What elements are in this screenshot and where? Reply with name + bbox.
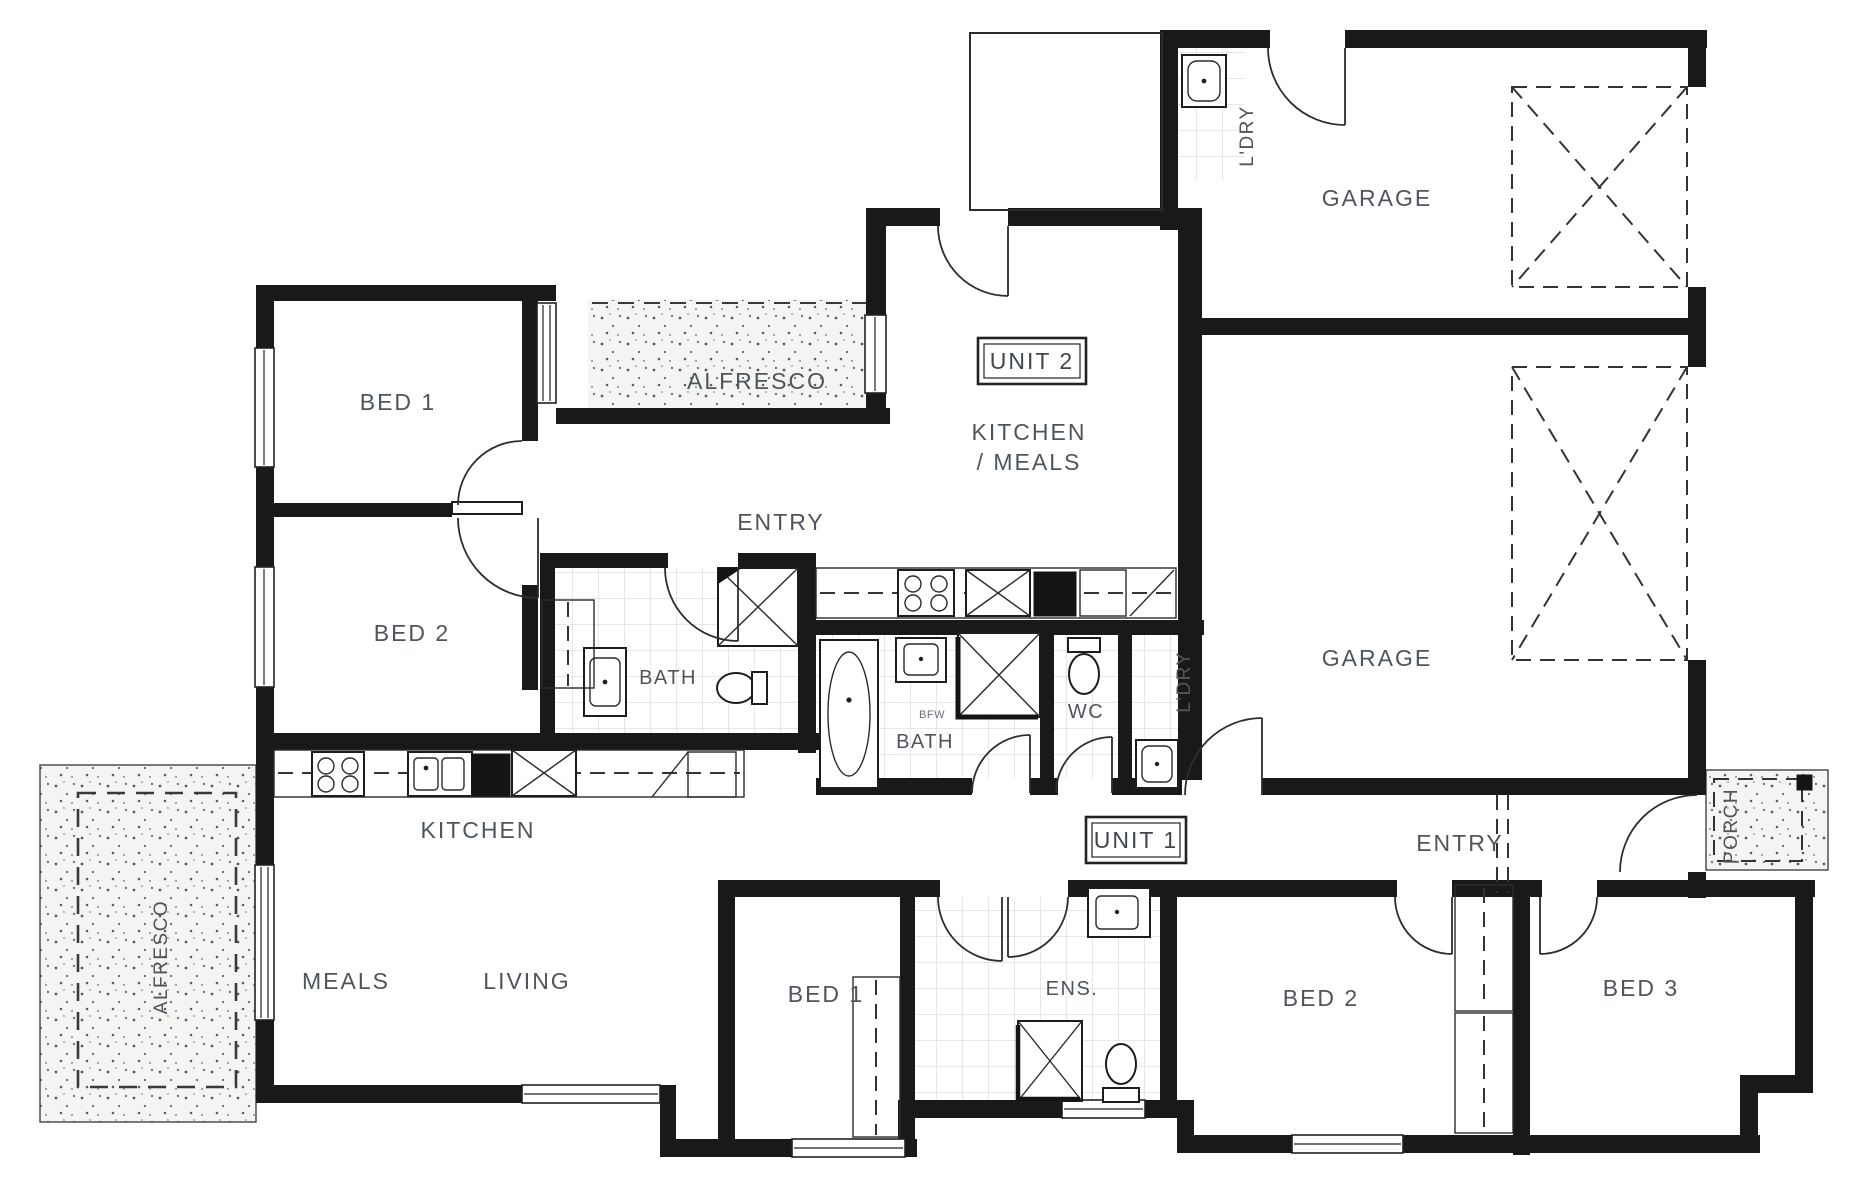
label-unit1-bed2: BED 2 (1283, 985, 1359, 1011)
garage-door-unit1 (1512, 367, 1687, 660)
label-unit1-wc: WC (1068, 701, 1104, 723)
floor-plan-drawing: UNIT 2 UNIT 1 BED 1 BED 2 ALFRESCO ENTRY… (0, 0, 1871, 1188)
unit2-tag: UNIT 2 (978, 338, 1086, 384)
vanity-ens (1088, 888, 1150, 937)
bathtub-unit1 (820, 640, 878, 788)
unit2-tag-label: UNIT 2 (990, 348, 1074, 374)
floor-plan-canvas: UNIT 2 UNIT 1 BED 1 BED 2 ALFRESCO ENTRY… (0, 0, 1871, 1188)
shower-unit1-bath (958, 633, 1040, 717)
meals-sliding-door (255, 865, 274, 1020)
alfresco-unit2-window (865, 315, 886, 393)
alfresco-unit1-area (40, 765, 256, 1122)
bed1-unit1-window (792, 1139, 905, 1157)
bed1-unit2-door (458, 441, 522, 505)
label-unit1-bath: BATH (896, 731, 954, 753)
oven-unit2 (1034, 572, 1076, 616)
garage-rear-door (1268, 48, 1345, 125)
label-unit1-entry: ENTRY (1416, 830, 1504, 856)
living-window (522, 1085, 660, 1103)
toilet-ens (1103, 1044, 1139, 1102)
shower-unit2 (718, 568, 798, 646)
label-unit1-meals: MEALS (302, 968, 390, 994)
label-unit1-living: LIVING (483, 968, 570, 994)
alfresco-unit2-slider (537, 303, 556, 403)
linen-hall-lower (1455, 1013, 1513, 1133)
toilet-wc (1068, 638, 1100, 694)
cooktop-unit2 (898, 570, 954, 616)
linen-hall-upper (1455, 885, 1513, 1011)
toilet-unit2 (717, 672, 767, 704)
sink-unit2 (966, 570, 1030, 616)
laundry-tub-unit1 (1136, 740, 1178, 788)
label-unit2-kitchen-meals-2: / MEALS (977, 449, 1082, 475)
kitchen-bench-unit2 (816, 568, 1176, 618)
label-unit1-laundry: L'DRY (1174, 651, 1195, 712)
label-unit1-bed3: BED 3 (1603, 975, 1679, 1001)
unit2-front-door (938, 226, 1008, 296)
shower-ens (1018, 1021, 1082, 1101)
label-unit2-bed2: BED 2 (374, 620, 450, 646)
label-unit1-bed1: BED 1 (788, 981, 864, 1007)
cooktop-unit1 (312, 752, 364, 796)
label-unit1-kitchen: KITCHEN (421, 817, 536, 843)
unit2-entry-court (970, 33, 1162, 210)
label-unit1-ens: ENS. (1046, 978, 1099, 1000)
oven-unit1 (472, 754, 510, 796)
label-unit1-bath-note: BFW (919, 709, 945, 721)
unit1-tag-label: UNIT 1 (1094, 827, 1178, 853)
unit1-tag: UNIT 1 (1086, 817, 1186, 863)
sink-unit1 (408, 752, 472, 796)
label-unit2-bed1: BED 1 (360, 389, 436, 415)
label-unit2-alfresco: ALFRESCO (687, 368, 827, 394)
label-unit1-porch: PORCH (1721, 788, 1742, 864)
label-unit2-laundry: L'DRY (1237, 105, 1258, 166)
room-labels: BED 1 BED 2 ALFRESCO ENTRY KITCHEN / MEA… (151, 105, 1742, 1014)
label-unit2-bath: BATH (639, 667, 697, 689)
label-unit1-alfresco: ALFRESCO (151, 900, 172, 1014)
pantry-unit1 (512, 750, 576, 796)
bed1-unit2-window (255, 348, 274, 467)
fridge-space-unit1 (688, 752, 736, 797)
laundry-tub-unit2 (1182, 55, 1226, 107)
label-unit1-garage: GARAGE (1322, 645, 1432, 671)
label-unit2-entry: ENTRY (737, 509, 825, 535)
bed2-unit1-window (1292, 1135, 1403, 1153)
label-unit2-kitchen-meals-1: KITCHEN (972, 419, 1087, 445)
garage-door-unit2 (1512, 87, 1687, 287)
unit1-front-door (1620, 795, 1697, 872)
bed-doors-leaf (452, 502, 522, 514)
label-unit2-garage: GARAGE (1322, 185, 1432, 211)
kitchen-bench-unit1 (274, 750, 744, 797)
vanity-unit2 (584, 648, 626, 716)
bed2-unit2-window (255, 567, 274, 687)
bed3-door (1540, 897, 1597, 954)
vanity-unit1-bath (896, 638, 946, 682)
bed2-unit1-door (1395, 897, 1452, 954)
